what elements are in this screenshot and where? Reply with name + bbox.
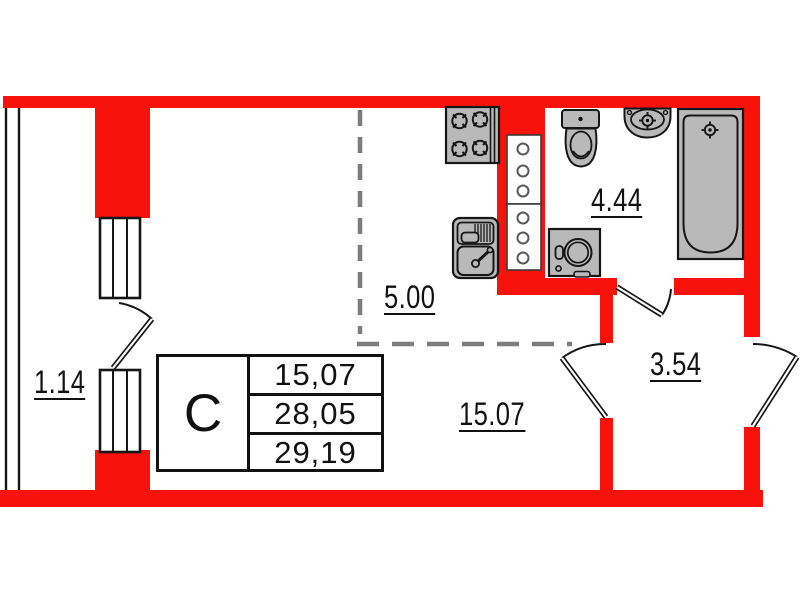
washer-latch	[556, 246, 564, 259]
room-label-hallway: 3.54	[650, 351, 701, 382]
shaft-hole	[518, 144, 529, 155]
washing-machine-icon	[549, 229, 600, 277]
bathroom-door	[617, 287, 671, 315]
room-label-kitchen: 5.00	[384, 284, 435, 315]
area-row: 29,19	[250, 432, 381, 471]
apartment-info-table: С 15,07 28,05 29,19	[156, 354, 384, 472]
hallway-wall-upper	[600, 295, 613, 343]
door-leaf	[753, 357, 797, 426]
balcony-door	[113, 303, 152, 368]
washer-slot	[574, 272, 590, 278]
area-row: 15,07	[250, 357, 381, 393]
window-frame	[100, 370, 140, 452]
floor-plan: 1.14 5.00 4.44 15.07 3.54 С 15,07 28,05 …	[0, 0, 800, 600]
wall-bottom	[0, 490, 763, 507]
shaft-hole	[518, 213, 529, 224]
shaft-hole	[518, 233, 529, 244]
area-row: 28,05	[250, 393, 381, 432]
wall-right-upper	[744, 96, 760, 337]
stove-icon	[446, 107, 499, 163]
balcony-window-lower	[100, 370, 140, 452]
balcony-pier-lower	[95, 450, 150, 490]
hallway-wall-lower	[600, 418, 613, 490]
sink-faucet-tip	[487, 247, 492, 252]
sink-drain	[472, 260, 479, 267]
balcony-window-upper	[100, 218, 140, 298]
shaft-hole	[518, 166, 529, 177]
washbasin-icon	[625, 109, 671, 138]
vent-shaft-lower	[507, 204, 541, 270]
area-values-column: 15,07 28,05 29,19	[250, 357, 381, 469]
wall-top	[3, 96, 760, 108]
room-label-balcony: 1.14	[34, 369, 85, 400]
toilet-icon	[562, 110, 599, 167]
room-label-living-room: 15.07	[459, 401, 525, 432]
vent-shaft-upper	[507, 135, 541, 204]
kitchen-sink-icon	[453, 218, 498, 278]
toilet-button	[578, 117, 582, 121]
room-label-bathroom: 4.44	[591, 187, 642, 218]
door-swing-arc	[119, 303, 152, 319]
apartment-type-cell: С	[159, 357, 250, 469]
balcony-glazing-lines	[6, 108, 19, 490]
bathroom-wall-bottom-right	[674, 278, 744, 295]
shaft-hole	[518, 253, 529, 264]
door-swing-arc	[753, 344, 797, 357]
sink-cup	[462, 233, 479, 243]
basin-screw	[664, 111, 668, 115]
bathtub-icon	[678, 109, 743, 259]
door-leaf	[562, 358, 606, 417]
entrance-door	[753, 344, 797, 426]
living-room-door	[562, 344, 606, 417]
window-frame	[100, 218, 140, 298]
door-swing-arc	[662, 289, 671, 315]
door-leaf	[113, 319, 152, 368]
basin-screw	[628, 111, 632, 115]
shaft-hole	[518, 186, 529, 197]
balcony-pier-upper	[95, 108, 150, 218]
door-leaf	[617, 287, 662, 315]
washer-knob	[556, 266, 561, 271]
bathroom-wall-bottom-left	[497, 278, 617, 295]
